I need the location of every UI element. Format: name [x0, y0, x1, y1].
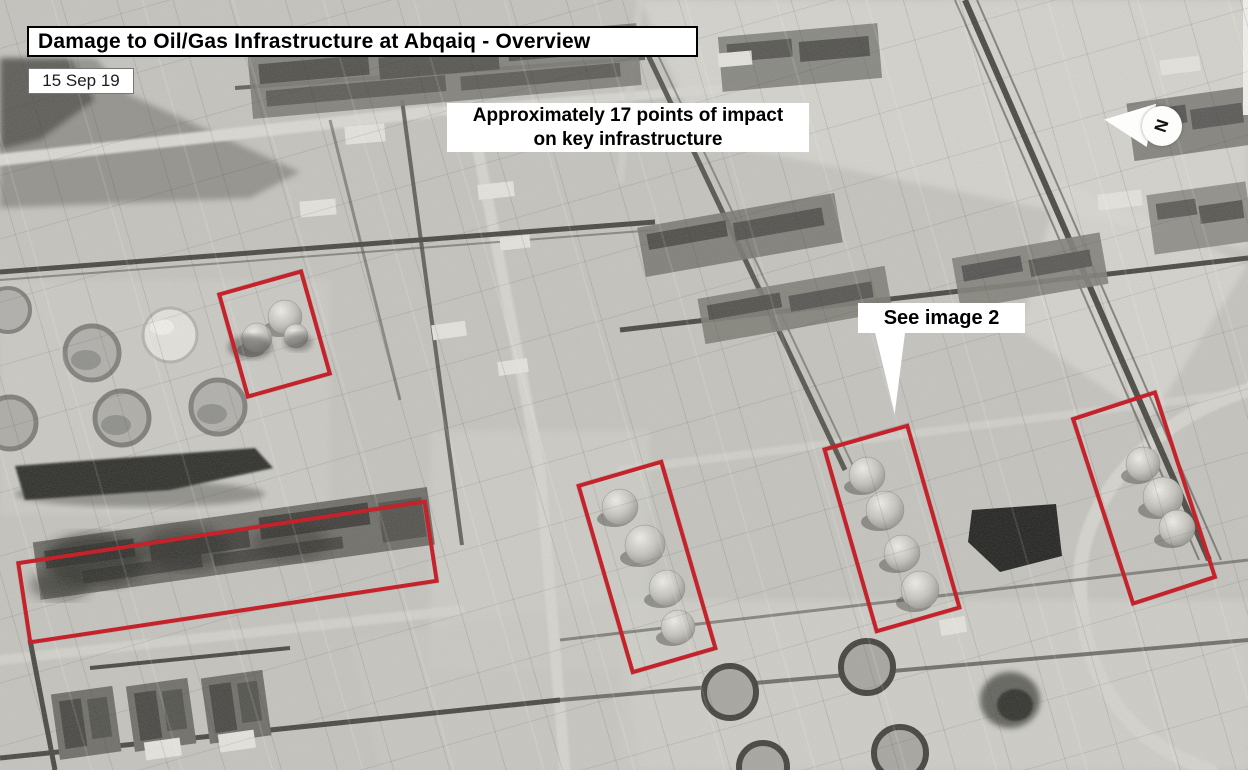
impact-area-5	[1071, 390, 1218, 606]
impact-area-3	[576, 459, 718, 674]
impact-area-2	[16, 499, 439, 644]
impact-note-line2: on key infrastructure	[447, 128, 809, 152]
title-banner: Damage to Oil/Gas Infrastructure at Abqa…	[27, 26, 698, 57]
impact-area-1	[216, 269, 331, 399]
annotated-satellite-image: Damage to Oil/Gas Infrastructure at Abqa…	[0, 0, 1248, 770]
north-compass-circle: N	[1142, 106, 1182, 146]
impact-note-line1: Approximately 17 points of impact	[447, 104, 809, 128]
see-image-2-label: See image 2	[858, 303, 1025, 333]
page-title: Damage to Oil/Gas Infrastructure at Abqa…	[38, 30, 590, 53]
impact-area-4	[822, 423, 962, 633]
north-letter: N	[1151, 117, 1174, 135]
north-indicator: N	[1100, 95, 1190, 159]
impact-count-note: Approximately 17 points of impact on key…	[447, 103, 809, 152]
date-label: 15 Sep 19	[28, 68, 134, 94]
